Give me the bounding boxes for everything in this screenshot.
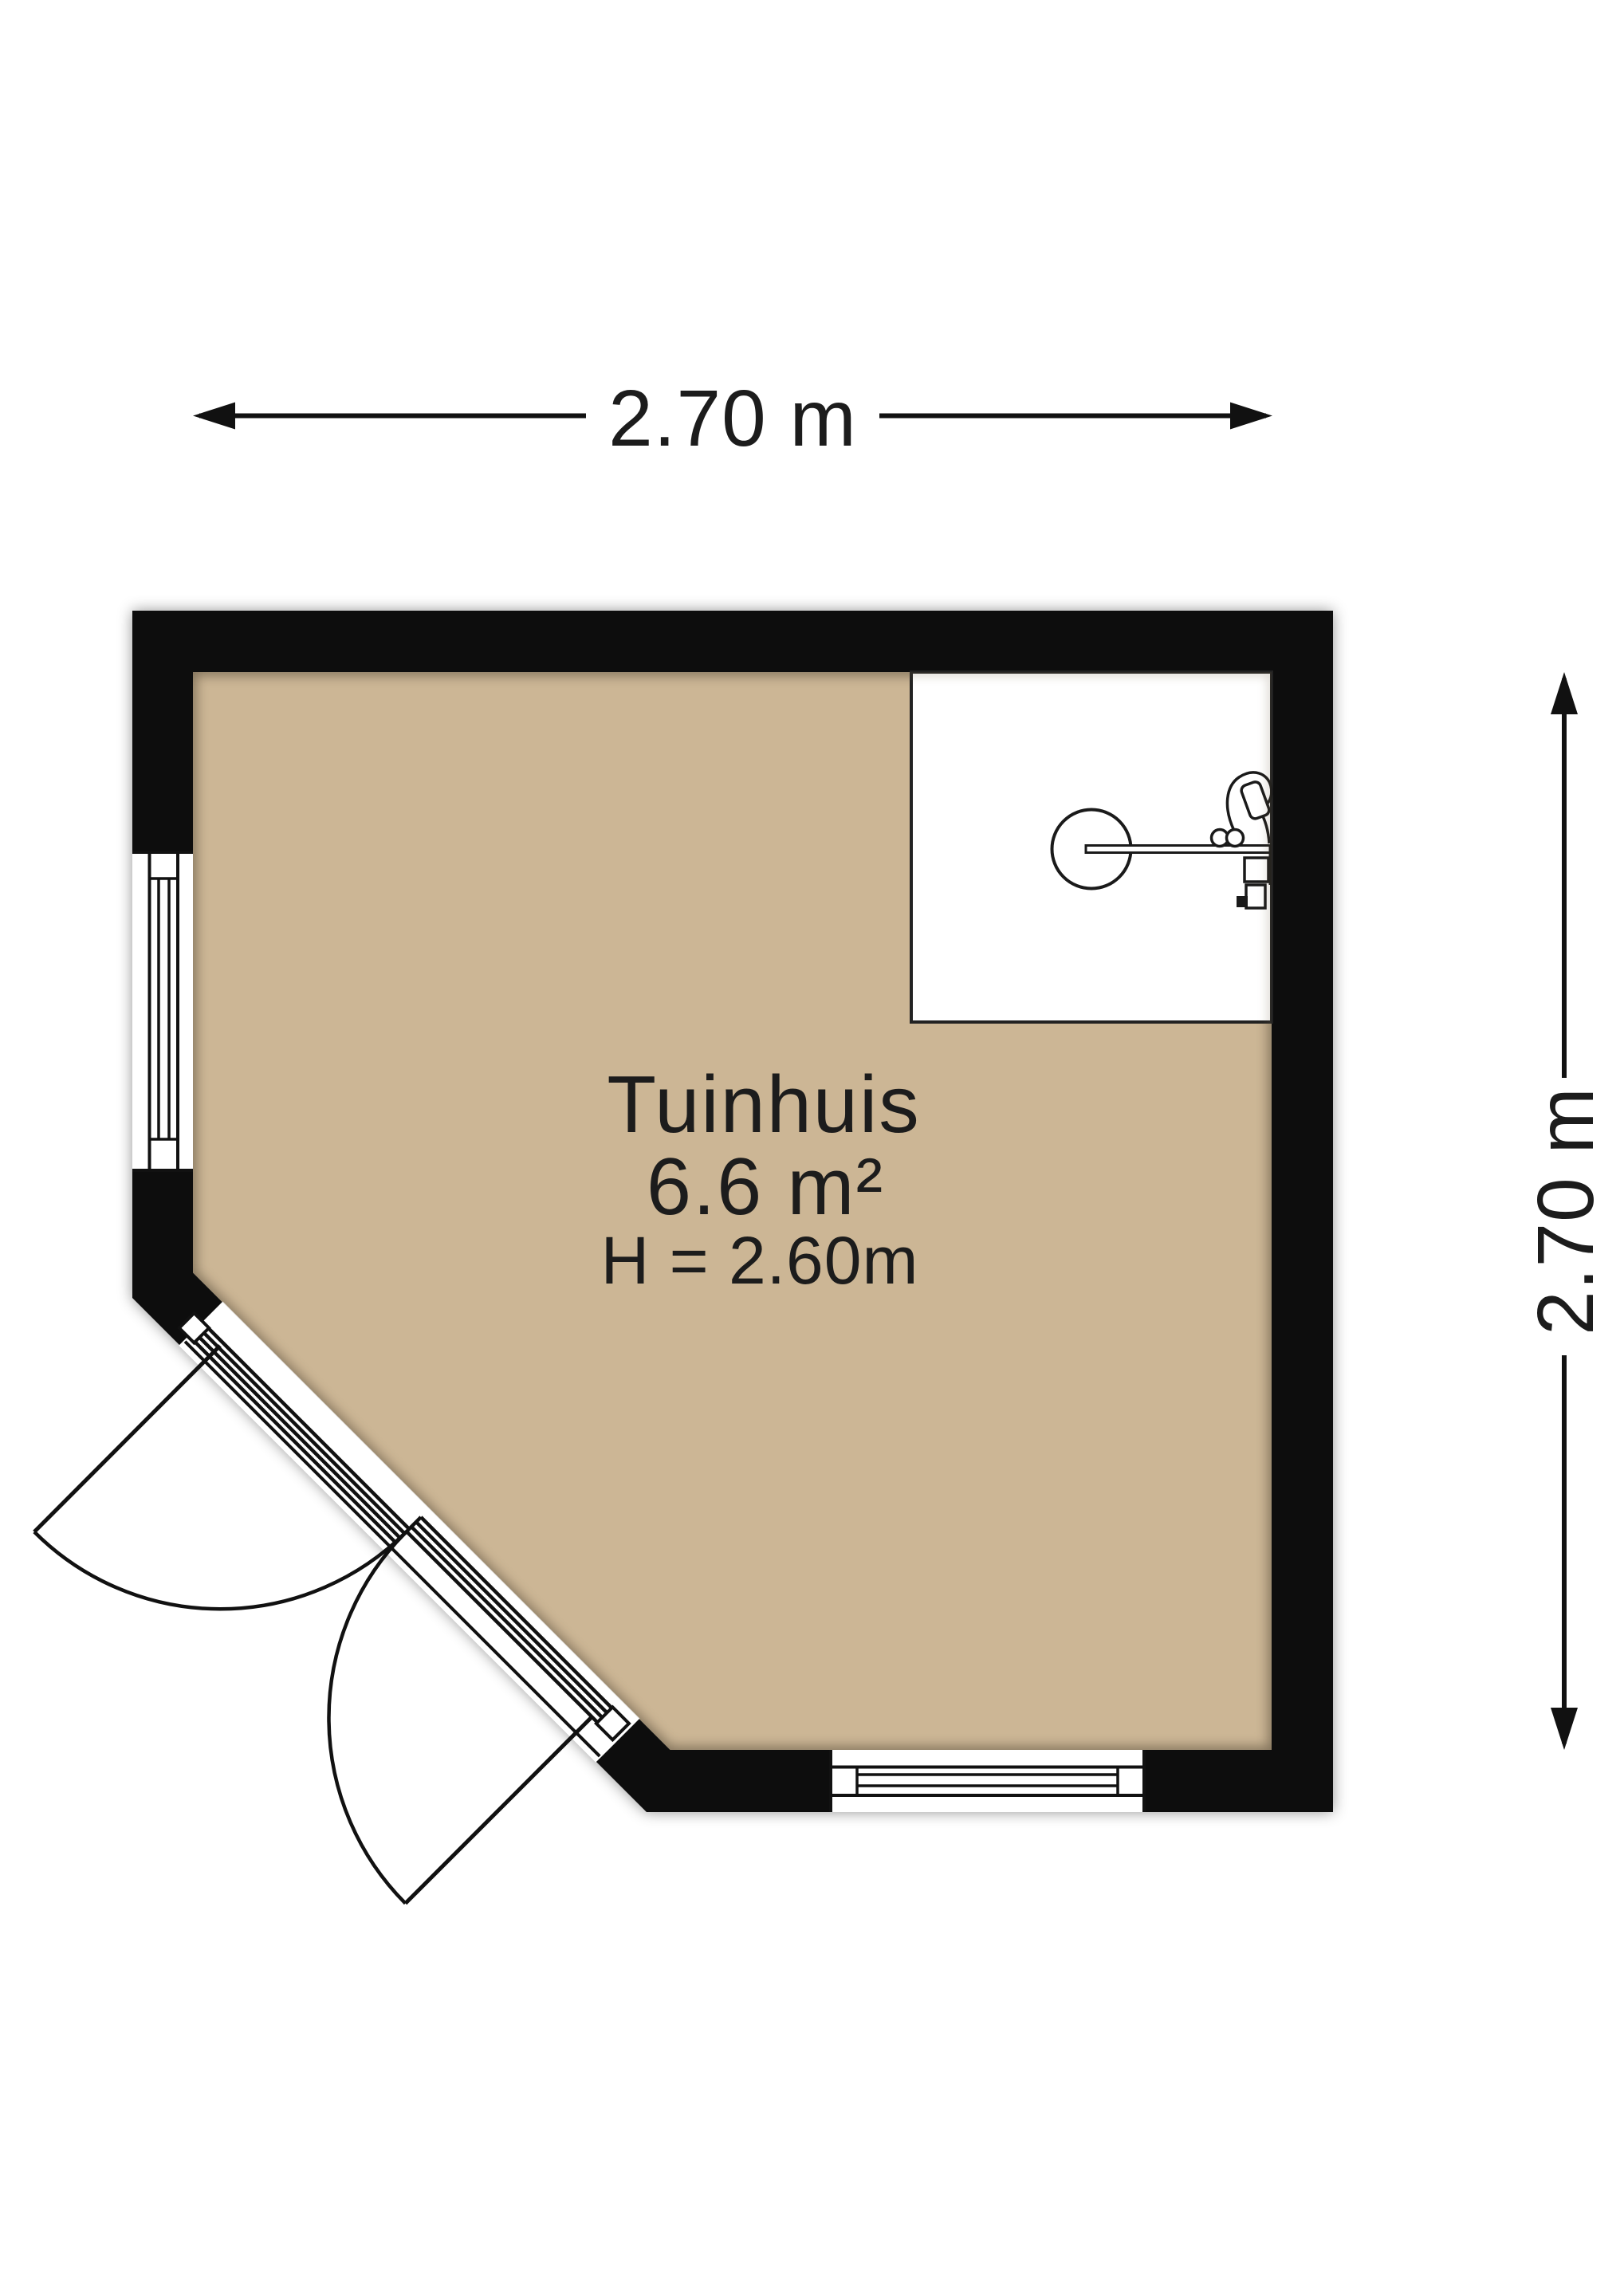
svg-text:2.70 m: 2.70 m — [1521, 1087, 1610, 1335]
svg-text:H = 2.60m: H = 2.60m — [601, 1223, 919, 1298]
svg-text:Tuinhuis: Tuinhuis — [607, 1060, 920, 1150]
svg-text:6.6 m²: 6.6 m² — [647, 1142, 884, 1232]
svg-text:2.70 m: 2.70 m — [608, 374, 857, 463]
